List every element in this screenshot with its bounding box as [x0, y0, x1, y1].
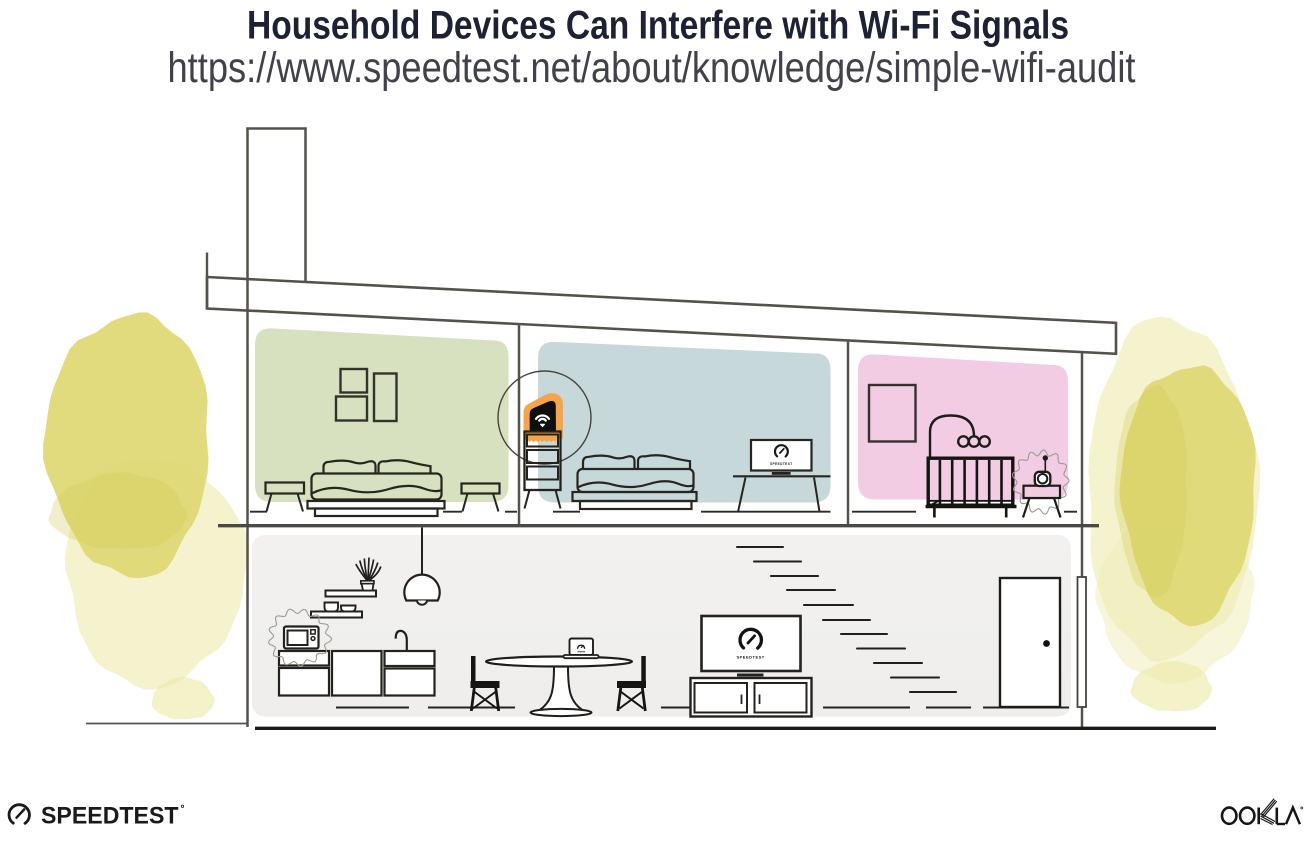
svg-text:SPEEDTEST: SPEEDTEST	[41, 803, 179, 830]
svg-text:SPEEDTEST: SPEEDTEST	[770, 462, 793, 466]
svg-text:https://www.speedtest.net/abou: https://www.speedtest.net/about/knowledg…	[168, 45, 1136, 92]
svg-text:SPEEDTEST: SPEEDTEST	[736, 655, 764, 660]
svg-text:Household Devices Can Interfer: Household Devices Can Interfere with Wi-…	[247, 4, 1069, 48]
